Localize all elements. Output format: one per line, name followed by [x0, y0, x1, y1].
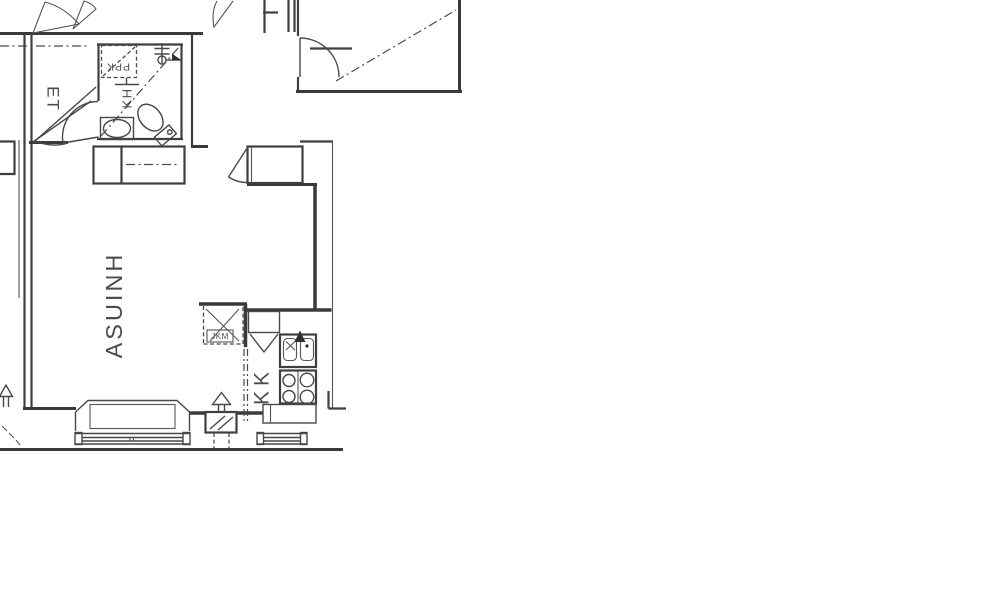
living-room-label: ASUINH — [101, 252, 127, 359]
fridge-label: JKM — [211, 332, 229, 341]
entry-label: ET — [44, 86, 63, 112]
washing-machine-label: PPK — [106, 61, 130, 73]
floor-plan-page: ET PPK KH — [0, 0, 1000, 611]
paper-background — [0, 0, 1000, 611]
floor-plan-drawing: ET PPK KH — [0, 0, 1000, 611]
bathroom-label: KH — [120, 87, 135, 108]
living-room: ASUINH — [101, 252, 127, 359]
kitchenette-label: KK — [251, 367, 274, 405]
